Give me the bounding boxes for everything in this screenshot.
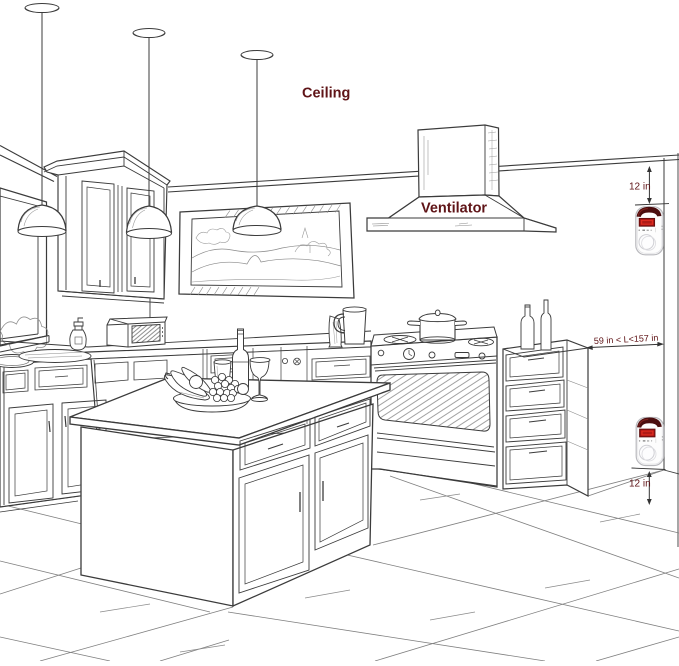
- svg-text:12 in: 12 in: [629, 479, 651, 490]
- svg-text:12 in: 12 in: [629, 182, 651, 193]
- svg-text:Ventilator: Ventilator: [421, 201, 487, 217]
- svg-text:Ceiling: Ceiling: [302, 86, 350, 102]
